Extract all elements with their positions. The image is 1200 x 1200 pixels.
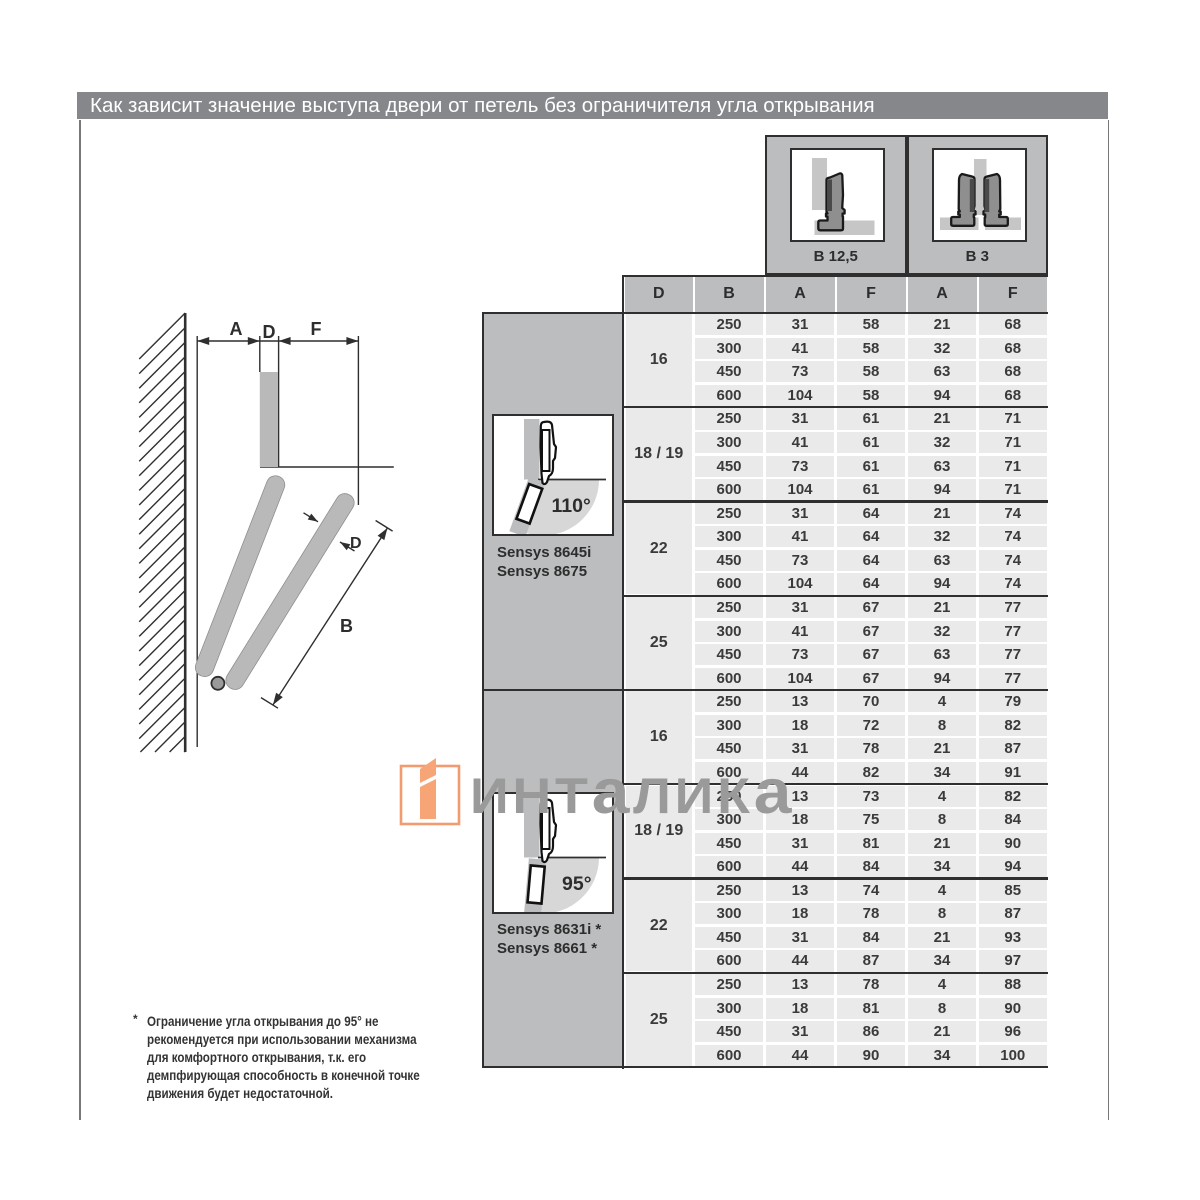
- svg-text:D: D: [263, 322, 276, 342]
- svg-text:B: B: [340, 616, 353, 636]
- svg-text:95°: 95°: [562, 873, 592, 895]
- svg-text:A: A: [230, 319, 243, 339]
- svg-text:F: F: [311, 319, 322, 339]
- svg-text:D: D: [350, 535, 362, 552]
- svg-text:110°: 110°: [552, 495, 591, 517]
